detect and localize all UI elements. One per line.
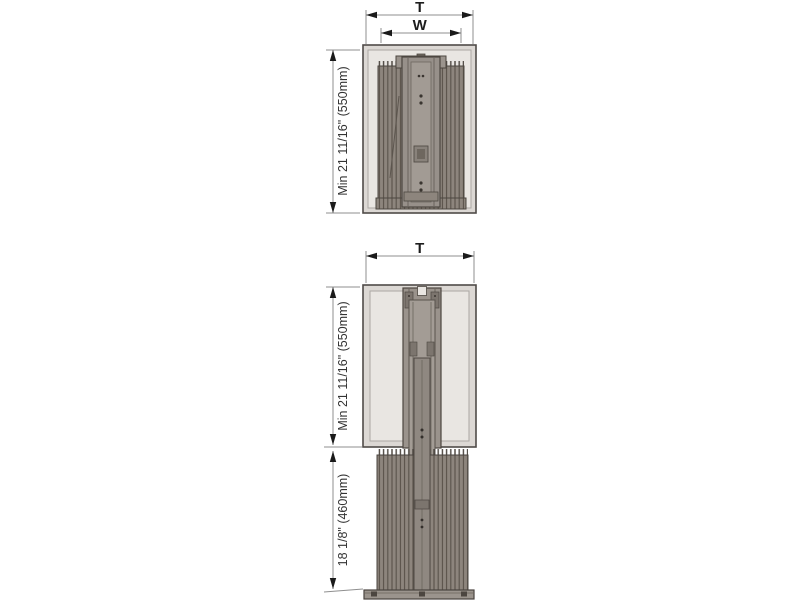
arrowhead	[366, 12, 377, 18]
lower-basket-teeth-right	[430, 449, 468, 455]
upper-basket-right	[439, 66, 464, 204]
arrowhead	[462, 12, 473, 18]
upper-inner-width-label: W	[400, 19, 440, 33]
arrowhead	[463, 253, 474, 259]
upper-basket-left	[378, 66, 403, 204]
lower-cabinet-height-label: Min 21 11/16" (550mm)	[335, 288, 351, 444]
upper-mechanism	[376, 54, 466, 209]
lower-total-width-label: T	[400, 242, 440, 256]
technical-drawing-page: T W Min 21 11/16" (550mm) T Min 21 11/16…	[0, 0, 800, 600]
pull-down-unit-drawing	[0, 0, 800, 600]
arrowhead	[381, 30, 392, 36]
lower-rail-top-notch	[418, 287, 427, 296]
arrowhead	[450, 30, 461, 36]
lower-basket-right	[430, 455, 468, 590]
upper-cabinet-height-label: Min 21 11/16" (550mm)	[335, 53, 351, 209]
lower-slide-catch	[415, 500, 429, 509]
upper-rail-inner-panel	[411, 62, 431, 202]
upper-total-width-label: T	[400, 1, 440, 15]
upper-bottom-bracket	[404, 192, 438, 201]
arrowhead	[366, 253, 377, 259]
lower-basket-teeth-left	[377, 449, 414, 455]
lower-extension-height-label: 18 1/8" (460mm)	[335, 442, 351, 598]
lower-basket-left	[377, 455, 414, 590]
